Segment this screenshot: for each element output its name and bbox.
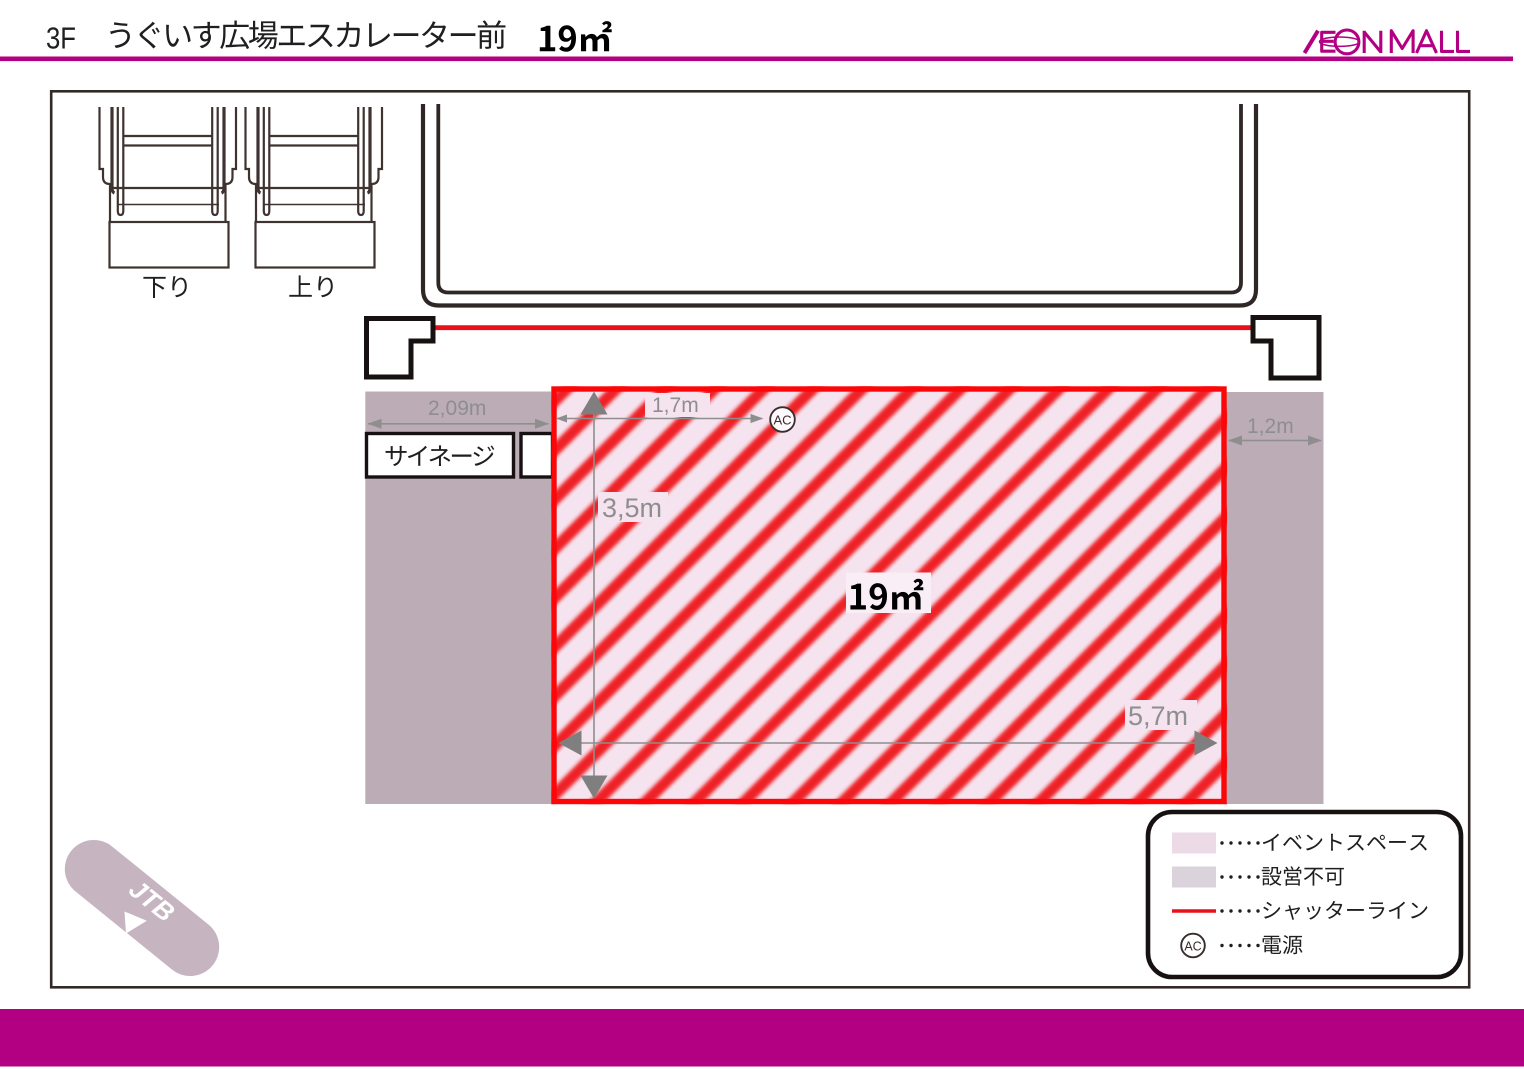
svg-text:AC: AC (773, 413, 791, 428)
svg-text:1,2m: 1,2m (1247, 415, 1294, 438)
svg-text:3,5m: 3,5m (602, 493, 662, 523)
svg-text:AC: AC (1184, 940, 1201, 954)
svg-text:3F: 3F (46, 21, 76, 56)
svg-text:2,09m: 2,09m (428, 397, 486, 420)
svg-text:1,7m: 1,7m (652, 394, 699, 417)
svg-text:5,7m: 5,7m (1128, 701, 1188, 731)
